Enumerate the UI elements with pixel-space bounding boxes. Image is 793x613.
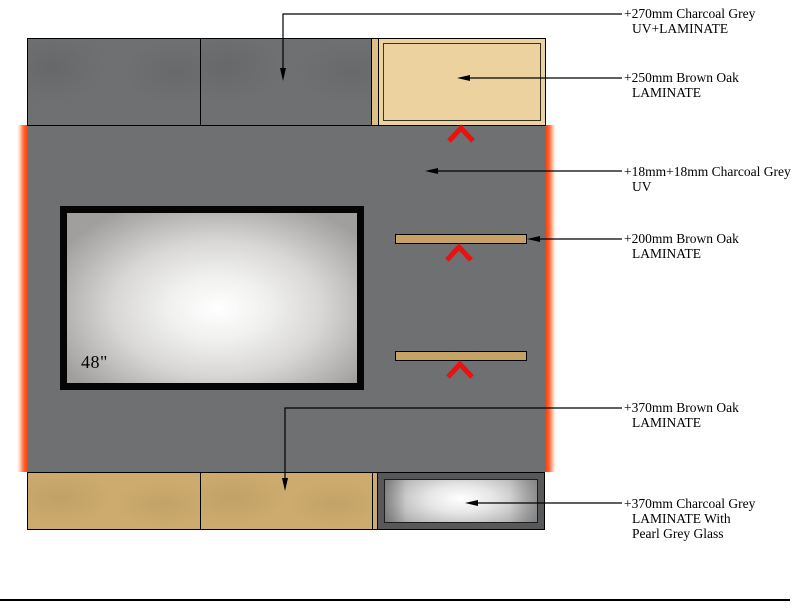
base-cabinet-door-left xyxy=(27,472,201,530)
tv: 48" xyxy=(60,206,364,390)
annotation-text: LAMINATE With xyxy=(624,511,755,526)
annotation-text: +270mm Charcoal Grey xyxy=(624,6,755,21)
pearl-grey-glass-pane xyxy=(384,479,538,523)
annotation-label-brown-oak-250: +250mm Brown Oak LAMINATE xyxy=(624,70,739,100)
led-glow-right xyxy=(546,125,556,472)
annotation-label-brown-oak-200: +200mm Brown Oak LAMINATE xyxy=(624,231,739,261)
elevation-drawing: 48" xyxy=(0,0,793,613)
annotation-text: +370mm Brown Oak xyxy=(624,400,739,415)
annotation-text: UV xyxy=(624,179,791,194)
top-cabinet-door-right xyxy=(200,38,377,126)
top-cabinet-door-left xyxy=(27,38,201,126)
tv-size-label: 48" xyxy=(81,352,108,373)
floor-line xyxy=(0,599,790,601)
annotation-label-brown-oak-370: +370mm Brown Oak LAMINATE xyxy=(624,400,739,430)
annotation-text: +18mm+18mm Charcoal Grey xyxy=(624,164,791,179)
annotation-text: +250mm Brown Oak xyxy=(624,70,739,85)
annotation-text: Pearl Grey Glass xyxy=(624,526,755,541)
base-cabinet-door-right xyxy=(200,472,373,530)
annotation-text: UV+LAMINATE xyxy=(624,21,755,36)
shelf-upper xyxy=(395,234,527,244)
annotation-text: +370mm Charcoal Grey xyxy=(624,496,755,511)
annotation-text: LAMINATE xyxy=(624,85,739,100)
glass-drawer xyxy=(377,472,545,530)
annotation-text: +200mm Brown Oak xyxy=(624,231,739,246)
annotation-label-charcoal-pearl-glass: +370mm Charcoal Grey LAMINATE With Pearl… xyxy=(624,496,755,541)
led-glow-left xyxy=(17,125,27,472)
annotation-text: LAMINATE xyxy=(624,246,739,261)
shelf-lower xyxy=(395,351,527,361)
annotation-label-charcoal-uv-laminate: +270mm Charcoal Grey UV+LAMINATE xyxy=(624,6,755,36)
annotation-label-charcoal-uv: +18mm+18mm Charcoal Grey UV xyxy=(624,164,791,194)
top-oak-panel xyxy=(378,38,546,126)
annotation-text: LAMINATE xyxy=(624,415,739,430)
top-oak-panel-inset-line xyxy=(383,43,541,121)
